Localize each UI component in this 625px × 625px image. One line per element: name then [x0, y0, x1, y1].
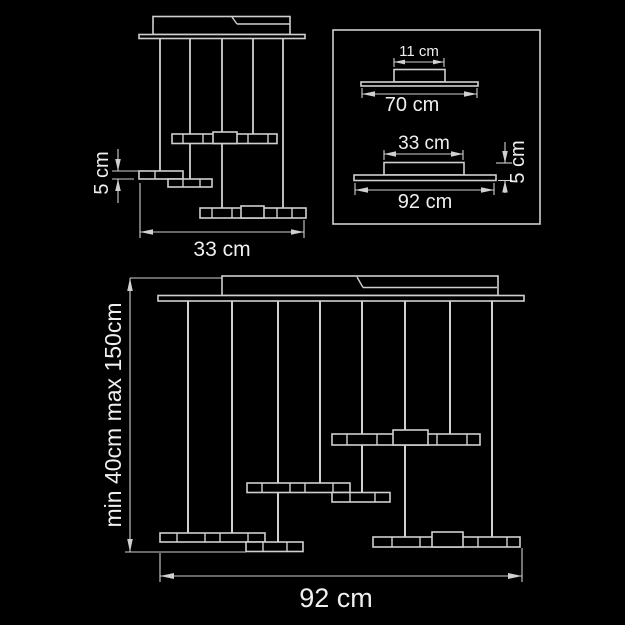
front-bar-bottom-right: [373, 532, 520, 547]
plan-height-dimension: [112, 149, 139, 203]
front-width-dimension: [160, 548, 522, 582]
plan-bottom-bar: [200, 206, 306, 218]
bar-width-label: 33 cm: [398, 133, 450, 154]
front-height-label: min 40cm max 150cm: [100, 303, 126, 528]
bar-base-label: 92 cm: [398, 191, 452, 213]
plan-height-label: 5 cm: [91, 151, 113, 194]
front-width-label: 92 cm: [299, 583, 373, 613]
technical-drawing: 5 cm 33 cm 11 cm: [0, 0, 625, 625]
front-bar-upper: [332, 430, 480, 445]
canopy-width-label: 11 cm: [399, 43, 439, 60]
lamp-dimension-diagram: 5 cm 33 cm 11 cm: [0, 0, 625, 625]
front-view: min 40cm max 150cm 92 cm: [100, 276, 524, 613]
plan-canopy: [139, 17, 305, 39]
bar-height-label: 5 cm: [507, 140, 529, 183]
plan-view: 5 cm 33 cm: [91, 17, 306, 262]
front-canopy: [158, 276, 524, 301]
front-height-dimension: [125, 278, 246, 552]
bar-profile: [354, 163, 496, 181]
front-suspension-rods: [188, 301, 492, 542]
front-bar-middle: [247, 483, 350, 493]
canopy-base-label: 70 cm: [385, 94, 439, 116]
plan-upper-bar: [172, 132, 277, 144]
front-bar-bottom-left: [160, 533, 303, 552]
front-bar-middle-offset: [332, 493, 390, 503]
canopy-profile: [361, 70, 478, 87]
plan-left-bar: [139, 171, 212, 187]
plan-width-label: 33 cm: [193, 238, 250, 261]
profile-box: 11 cm 70 cm 33 cm 92 cm: [333, 30, 540, 224]
